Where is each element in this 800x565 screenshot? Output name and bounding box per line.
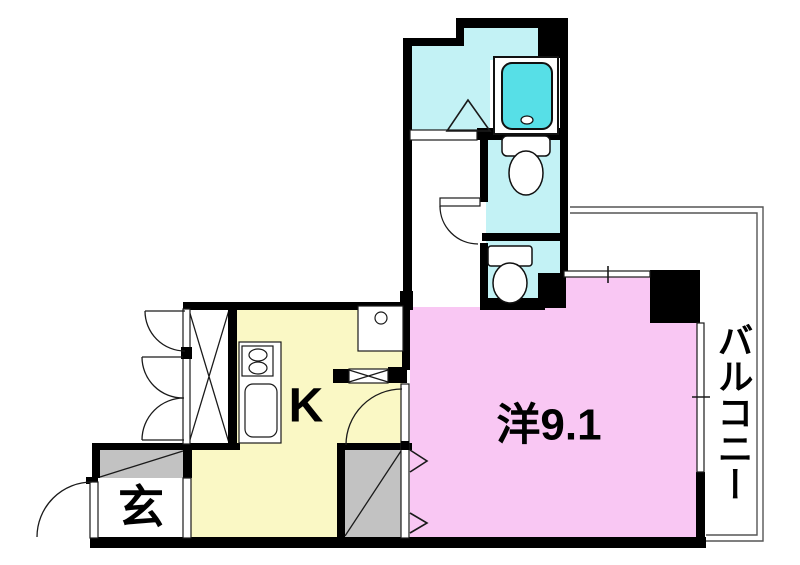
entrance-kitchen-opening	[183, 478, 191, 538]
wall-top	[456, 18, 568, 28]
closet-door-arc-1	[145, 311, 185, 351]
wall-bath-top-left	[403, 38, 464, 46]
closet-door-arc-3	[142, 398, 184, 440]
bathroom-floor-upper	[464, 25, 538, 60]
wall-right-lower	[696, 472, 705, 542]
wall-washroom-toilet-divider	[482, 233, 562, 241]
wall-washroom-left-upper	[480, 135, 488, 202]
front-door-arc	[37, 482, 92, 537]
wall-entrance-kitchen	[183, 443, 192, 478]
floor-plan: 洋9.1 K 玄 バルコニー	[0, 0, 800, 565]
washer-drain	[375, 312, 387, 324]
wall-left-corridor	[403, 38, 412, 310]
wall-main-closet-left	[337, 443, 345, 537]
wall-entrance-top	[92, 443, 240, 450]
hall-closet-track	[183, 309, 190, 444]
xbox-end-right	[388, 367, 407, 383]
washbasin-bowl	[509, 151, 543, 195]
stove-burner-1	[249, 349, 267, 361]
floor-plan-canvas: 洋9.1 K 玄 バルコニー	[0, 0, 800, 565]
front-door-leaf	[90, 482, 98, 538]
wall-strip-crossing	[401, 441, 409, 450]
wall-main-corner-block	[650, 270, 700, 323]
wall-tub-corner	[538, 27, 562, 58]
main-room-label: 洋9.1	[496, 401, 601, 450]
washroom-door-leaf	[440, 198, 480, 206]
washroom-door-arc	[440, 206, 478, 244]
kitchen-sink	[245, 384, 277, 437]
balcony-label: バルコニー	[713, 322, 754, 502]
entrance-label: 玄	[118, 481, 164, 533]
kitchen-floor-lower	[191, 450, 340, 538]
kitchen-label: K	[289, 380, 324, 433]
balcony-window-top	[564, 271, 650, 277]
toilet-bowl	[493, 263, 527, 303]
closet-door-arc-2	[142, 357, 183, 398]
stove-burner-2	[249, 362, 267, 374]
bathtub-drain	[521, 116, 533, 124]
kitchen-door-leaf-and-track	[401, 384, 409, 538]
xbox-end-left	[333, 369, 349, 383]
main-room-floor-upper	[560, 276, 650, 308]
wall-bottom	[90, 537, 706, 548]
wall-closet-right	[228, 302, 237, 450]
wall-entrance-left	[92, 443, 100, 478]
